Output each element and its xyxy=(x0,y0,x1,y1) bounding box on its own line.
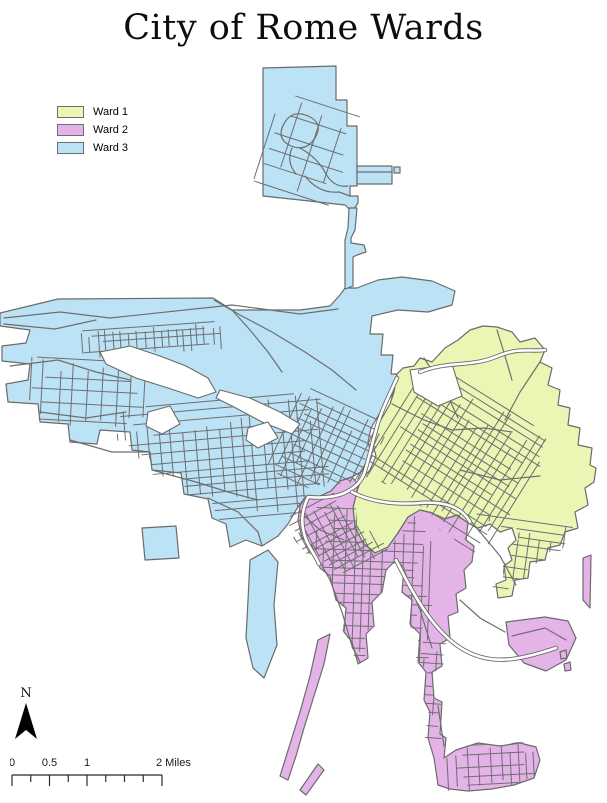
legend-item-ward3: Ward 3 xyxy=(57,139,128,157)
ward2-fragment-a xyxy=(560,650,567,659)
street xyxy=(457,654,462,728)
ward2-southwest-tail xyxy=(280,634,330,780)
legend-label-ward2: Ward 2 xyxy=(93,124,128,136)
north-arrow-icon xyxy=(12,702,40,742)
legend: Ward 1 Ward 2 Ward 3 xyxy=(57,103,128,157)
scale-label-0: 0 xyxy=(10,757,15,769)
street xyxy=(446,655,450,718)
legend-label-ward1: Ward 1 xyxy=(93,106,128,118)
ward3-north-lobe xyxy=(263,66,358,212)
street xyxy=(324,666,410,669)
street xyxy=(489,526,497,583)
street xyxy=(393,670,452,674)
street xyxy=(570,547,576,589)
street xyxy=(387,640,393,731)
street xyxy=(117,434,123,505)
north-arrow: N xyxy=(10,686,42,747)
ward1-swatch xyxy=(57,106,84,118)
street xyxy=(316,637,420,641)
street xyxy=(409,662,414,729)
street xyxy=(392,710,455,714)
ward2-fragment-b xyxy=(564,662,571,671)
street xyxy=(305,547,308,637)
scale-bar: 0 0.5 1 2 Miles xyxy=(10,754,210,797)
ward3-outparcel-a xyxy=(357,166,392,184)
ward3-west-fragment xyxy=(142,526,179,560)
scale-label-2miles: 2 Miles xyxy=(156,757,191,769)
legend-item-ward1: Ward 1 xyxy=(57,103,128,121)
north-label: N xyxy=(10,686,42,701)
scale-label-05: 0.5 xyxy=(42,757,57,769)
street xyxy=(483,585,556,595)
street xyxy=(313,654,429,658)
ward2-southwest-sliver xyxy=(300,764,324,795)
road xyxy=(460,600,505,632)
legend-label-ward3: Ward 3 xyxy=(93,142,128,154)
ward2-swatch xyxy=(57,124,84,136)
scale-ticks xyxy=(12,775,162,786)
ward3-swatch xyxy=(57,142,84,154)
map-page: City of Rome Wards xyxy=(0,0,607,803)
scale-label-1: 1 xyxy=(84,757,90,769)
ward2-east-sliver xyxy=(583,555,591,608)
legend-item-ward2: Ward 2 xyxy=(57,121,128,139)
ward3-south-lobe xyxy=(246,550,278,678)
street xyxy=(398,736,456,740)
ward3-connector-strip xyxy=(345,208,366,289)
scale-bar-graphic: 0 0.5 1 2 Miles xyxy=(10,754,210,792)
ward3-outparcel-b xyxy=(394,167,400,173)
street xyxy=(396,663,400,722)
